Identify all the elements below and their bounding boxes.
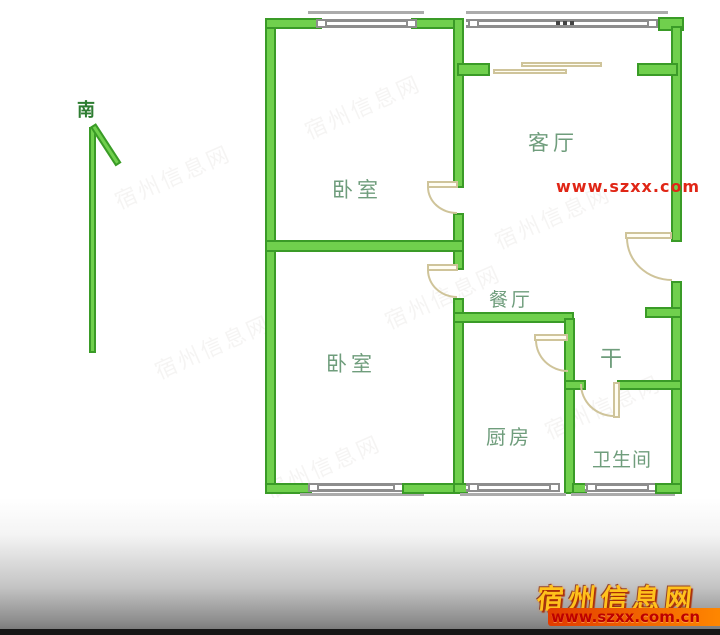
sliding-door-panel [493, 69, 567, 74]
window-kitchen [466, 483, 560, 492]
wall-bottom-bathroom-right [655, 483, 682, 494]
window-sill [308, 11, 424, 14]
sliding-door-panel [521, 62, 602, 67]
wall-left-exterior [265, 18, 276, 494]
window-sill [460, 493, 566, 496]
room-label-living: 客厅 [528, 127, 578, 157]
room-label-bathroom: 卫生间 [592, 445, 652, 472]
window-vent-dot [570, 21, 574, 25]
window-bedroom2 [308, 483, 404, 492]
window-cap [647, 19, 658, 28]
window-vent-dot [563, 21, 567, 25]
room-label-dry: 干 [600, 341, 625, 373]
door-leaf-bathroom [613, 382, 620, 418]
room-label-bedroom1: 卧室 [332, 174, 382, 204]
watermark-site-url: www.szxx.com.cn [548, 608, 720, 626]
watermark-url-mid: www.szxx.com [556, 177, 700, 196]
window-cap [549, 483, 560, 492]
wall-bathroom-top-right [617, 380, 682, 390]
wall-bedroom-divider [265, 240, 464, 252]
wall-dining-bottom [453, 312, 574, 323]
faint-watermark: 宿州信息网 [109, 136, 236, 216]
window-bedroom1 [316, 19, 417, 28]
floor-plan-image: 宿州信息网 宿州信息网 宿州信息网 宿州信息网 宿州信息网 宿州信息网 宿州信息… [0, 0, 720, 635]
room-label-bedroom2: 卧室 [326, 348, 376, 378]
window-cap [316, 19, 327, 28]
door-arc-kitchen [535, 340, 568, 372]
door-arc-bedroom1 [427, 187, 457, 214]
wall-balcony-stub-left [457, 63, 490, 76]
compass-south-label: 南 [77, 96, 95, 122]
window-vent-dot [556, 21, 560, 25]
wall-balcony-stub-right [637, 63, 678, 76]
room-label-dining: 餐厅 [489, 285, 533, 312]
faint-watermark: 宿州信息网 [149, 306, 276, 386]
window-cap [406, 19, 417, 28]
bottom-dark-strip [0, 629, 720, 635]
window-cap [308, 483, 319, 492]
window-cap [468, 19, 479, 28]
wall-mid-vertical-upper [453, 18, 464, 188]
wall-mid-vertical-lower [453, 298, 464, 494]
wall-dry-area-stub [645, 307, 682, 318]
compass-arrow-shaft [89, 127, 96, 353]
wall-right-upper [671, 26, 682, 242]
faint-watermark: 宿州信息网 [299, 66, 426, 146]
room-label-kitchen: 厨房 [486, 421, 532, 450]
window-sill [466, 11, 668, 14]
wall-top-bedroom1-left [265, 18, 322, 29]
watermark-site-url-bar: www.szxx.com.cn [548, 608, 720, 626]
door-arc-entry [626, 238, 672, 281]
window-cap [468, 483, 479, 492]
window-cap [586, 483, 597, 492]
